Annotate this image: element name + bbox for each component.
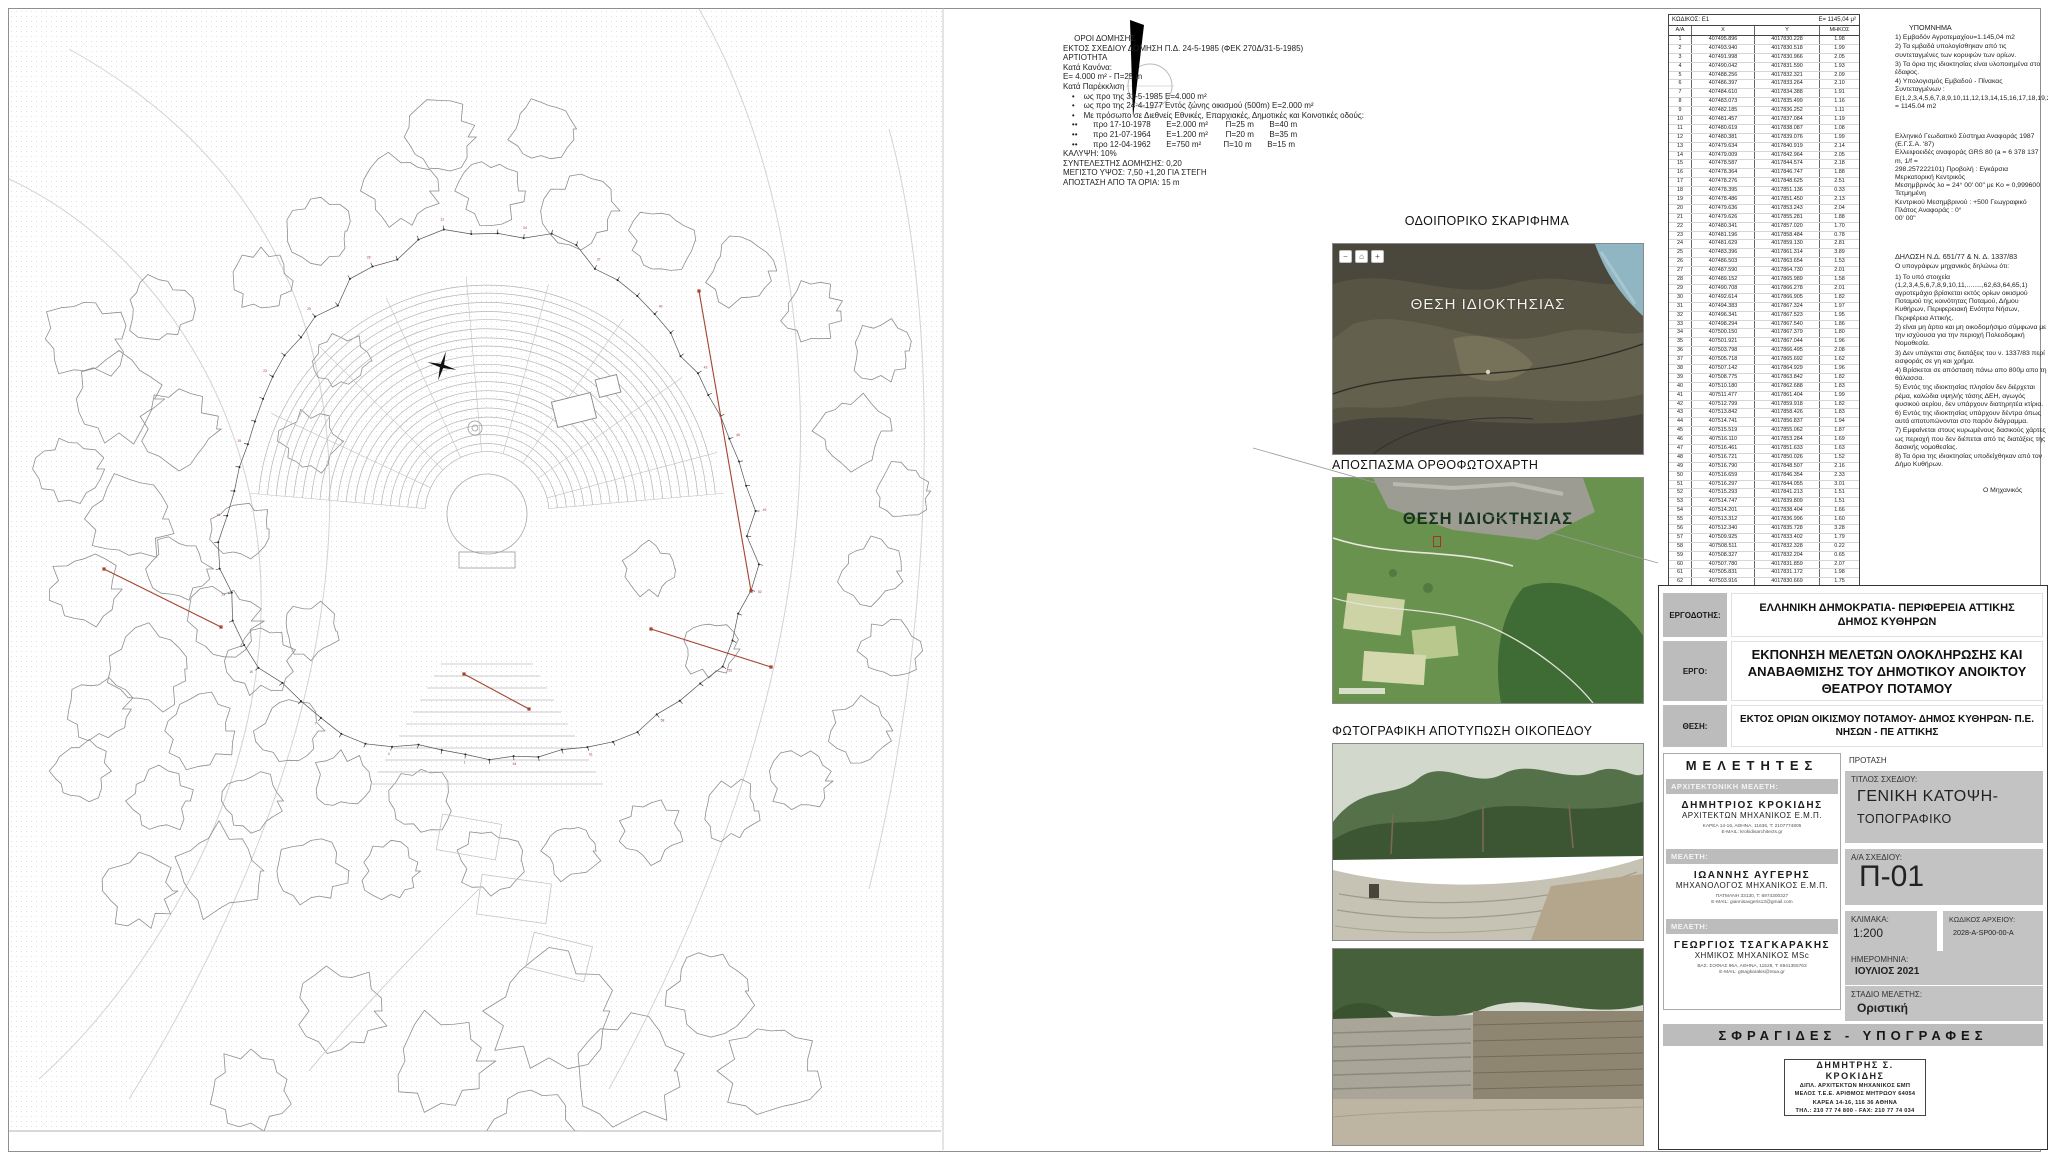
map-control-button-1[interactable]: ⌂ xyxy=(1355,250,1368,263)
table-row: 1407495.8964017830.2281.98 xyxy=(1669,36,1859,45)
table-row: 12407480.3814017839.0761.99 xyxy=(1669,134,1859,143)
text-line: Ε= 4.000 m² - Π=25 m xyxy=(1063,72,1543,82)
date-label: ΗΜΕΡΟΜΗΝΙΑ: xyxy=(1845,951,2043,964)
satellite-map-image xyxy=(1333,244,1643,454)
svg-text:49: 49 xyxy=(763,508,767,512)
table-row: 38407507.1424017864.9291.96 xyxy=(1669,365,1859,374)
date-box: ΗΜΕΡΟΜΗΝΙΑ: ΙΟΥΛΙΟΣ 2021 xyxy=(1845,951,2043,985)
table-row: 22407480.3414017857.0201.70 xyxy=(1669,223,1859,232)
table-row: 44407514.7414017856.8371.94 xyxy=(1669,418,1859,427)
table-row: 34407500.1504017867.3791.80 xyxy=(1669,329,1859,338)
table-row: 60407507.7804017831.8592.07 xyxy=(1669,561,1859,570)
text-line: 1) Εμβαδόν Αγροτεμαχίου=1.145,04 m2 xyxy=(1895,34,2047,42)
stage-value: Οριστική xyxy=(1845,999,2043,1015)
orthophoto-label: ΑΠΟΣΠΑΣΜΑ ΟΡΘΟΦΩΤΟΧΑΡΤΗ xyxy=(1332,458,1538,472)
client-label: ΕΡΓΟΔΟΤΗΣ: xyxy=(1663,593,1727,637)
table-row: 16407478.3644017846.7471.88 xyxy=(1669,169,1859,178)
text-line: 4) Υπολογισμός Εμβαδού - Πίνακας Συντετα… xyxy=(1895,78,2047,111)
sheet-number: Π-01 xyxy=(1845,860,2043,894)
table-row: 45407515.5194017855.0621.87 xyxy=(1669,427,1859,436)
table-row: 41407511.4774017861.4041.99 xyxy=(1669,392,1859,401)
svg-text:13: 13 xyxy=(221,592,225,596)
file-code-label: ΚΩΔΙΚΟΣ ΑΡΧΕΙΟΥ: xyxy=(1943,911,2043,924)
table-row: 30407492.6144017866.9051.82 xyxy=(1669,294,1859,303)
table-row: 53407514.7474017839.8091.51 xyxy=(1669,498,1859,507)
sheet-number-box: Α/Α ΣΧΕΔΙΟΥ: Π-01 xyxy=(1845,849,2043,905)
location-value: ΕΚΤΟΣ ΟΡΙΩΝ ΟΙΚΙΣΜΟΥ ΠΟΤΑΜΟΥ- ΔΗΜΟΣ ΚΥΘΗ… xyxy=(1731,705,2043,747)
site-plan: 1471013161922252831343740434649525558616… xyxy=(9,9,942,1131)
text-line: Κατά Κανόνα: xyxy=(1063,63,1543,73)
designer-entry: ΜΕΛΕΤΗ:ΙΩΑΝΝΗΣ ΑΥΓΕΡΗΣΜΗΧΑΝΟΛΟΓΟΣ ΜΗΧΑΝΙ… xyxy=(1664,849,1840,906)
svg-text:4: 4 xyxy=(388,752,390,756)
table-row: 58407508.5114017832.3280.22 xyxy=(1669,543,1859,552)
table-row: 57407509.9254017833.4021.79 xyxy=(1669,534,1859,543)
coordinates-table: ΚΩΔΙΚΟΣ: Ε1 Ε= 1145,04 μ² Α/Α Χ Υ ΜΗΚΟΣ … xyxy=(1668,14,1860,615)
table-row: 36407503.7984017866.4952.08 xyxy=(1669,347,1859,356)
text-line: Κατά Παρέκκλιση xyxy=(1063,82,1543,92)
orthophoto-map: ΘΕΣΗ ΙΔΙΟΚΤΗΣΙΑΣ xyxy=(1332,477,1644,704)
map-control-button-2[interactable]: + xyxy=(1371,250,1384,263)
text-line: 1) Το υπό στοιχεία (1,2,3,4,5,6,7,8,9,10… xyxy=(1895,274,2047,323)
table-row: 29407490.7084017866.2782.01 xyxy=(1669,285,1859,294)
text-line: Ελληνικό Γεωδαιτικό Σύστημα Αναφοράς 198… xyxy=(1895,133,2047,149)
site-photos-label: ΦΩΤΟΓΡΑΦΙΚΗ ΑΠΟΤΥΠΩΣΗ ΟΙΚΟΠΕΔΟΥ xyxy=(1332,724,1592,738)
declaration-items: 1) Το υπό στοιχεία (1,2,3,4,5,6,7,8,9,10… xyxy=(1895,274,2047,470)
satellite-map: ΘΕΣΗ ΙΔΙΟΚΤΗΣΙΑΣ −⌂+ xyxy=(1332,243,1644,455)
map-controls: −⌂+ xyxy=(1339,250,1384,263)
text-line: ΑΡΤΙΟΤΗΤΑ xyxy=(1063,53,1543,63)
table-row: 43407513.8424017858.4261.83 xyxy=(1669,409,1859,418)
table-row: 50407516.6594017846.3542.33 xyxy=(1669,472,1859,481)
table-row: 17407478.2764017848.6252.51 xyxy=(1669,178,1859,187)
svg-text:1: 1 xyxy=(464,760,466,764)
svg-text:31: 31 xyxy=(441,218,445,222)
svg-text:55: 55 xyxy=(728,669,732,673)
site-photo-1 xyxy=(1332,743,1644,941)
svg-text:19: 19 xyxy=(237,439,241,443)
text-line: Μεσημβρινός λο = 24° 00' 00" με Κο = 0,9… xyxy=(1895,182,2047,198)
legend-items: 1) Εμβαδόν Αγροτεμαχίου=1.145,04 m22) Τα… xyxy=(1895,34,2047,111)
col-header-x: Χ xyxy=(1692,26,1755,35)
table-row: 35407501.9214017867.0441.96 xyxy=(1669,338,1859,347)
table-row: 49407516.7904017848.5072.16 xyxy=(1669,463,1859,472)
site-plan-svg: 1471013161922252831343740434649525558616… xyxy=(9,9,942,1131)
col-header-y: Υ xyxy=(1755,26,1820,35)
table-row: 56407512.3404017835.7283.28 xyxy=(1669,525,1859,534)
text-line: Ελλειψοειδές αναφοράς GRS 80 (a = 6 378 … xyxy=(1895,149,2047,165)
table-row: 19407478.4864017851.4502.13 xyxy=(1669,196,1859,205)
site-photo-2-image xyxy=(1333,949,1643,1145)
table-row: 47407516.4614017851.6331.63 xyxy=(1669,445,1859,454)
text-line: 2) είναι μη άρτιο και μη οικοδομήσιμο σύ… xyxy=(1895,324,2047,349)
table-code-label: ΚΩΔΙΚΟΣ: Ε1 xyxy=(1672,16,1709,24)
declaration-title: ΔΗΛΩΣΗ Ν.Δ. 651/77 & Ν. Δ. 1337/83 xyxy=(1895,253,2047,261)
table-row: 25407483.3964017861.3143.89 xyxy=(1669,249,1859,258)
engineer-signoff: Ο Μηχανικός xyxy=(1983,487,2047,495)
svg-text:64: 64 xyxy=(513,762,517,766)
table-row: 2407493.9404017830.5181.99 xyxy=(1669,45,1859,54)
sketch-map-label: ΟΔΟΙΠΟΡΙΚΟ ΣΚΑΡΙΦΗΜΑ xyxy=(1332,214,1642,228)
col-header-length: ΜΗΚΟΣ xyxy=(1820,26,1859,35)
table-row: 13407479.6344017840.9192.14 xyxy=(1669,143,1859,152)
table-row: 7407484.6104017834.3881.91 xyxy=(1669,89,1859,98)
text-line: ΟΡΟΙ ΔΟΜΗΣΗΣ xyxy=(1063,34,1543,44)
table-row: 3407491.9984017830.9662.05 xyxy=(1669,54,1859,63)
table-row: 20407479.6364017853.2432.04 xyxy=(1669,205,1859,214)
svg-text:40: 40 xyxy=(659,304,663,308)
designer-entry: ΜΕΛΕΤΗ:ΓΕΩΡΓΙΟΣ ΤΣΑΓΚΑΡΑΚΗΣΧΗΜΙΚΟΣ ΜΗΧΑΝ… xyxy=(1664,919,1840,976)
table-row: 51407516.2974017844.0553.01 xyxy=(1669,481,1859,490)
legend-title: ΥΠΟΜΝΗΜΑ xyxy=(1895,24,2047,32)
table-row: 23407481.1964017858.4840.78 xyxy=(1669,232,1859,241)
text-line: ΤΗΛ.: 210 77 74 800 - FAX: 210 77 74 034 xyxy=(1785,1107,1925,1116)
scale-value: 1:200 xyxy=(1845,924,1937,940)
table-row: 39407508.7754017863.8421.82 xyxy=(1669,374,1859,383)
client-value-line2: ΔΗΜΟΣ ΚΥΘΗΡΩΝ xyxy=(1838,615,1937,629)
file-code-value: 2028-A-SP00-00-A xyxy=(1943,924,2043,937)
site-photo-2 xyxy=(1332,948,1644,1146)
proposal-label: ΠΡΟΤΑΣΗ xyxy=(1849,756,1887,765)
declaration-intro: Ο υπογράφων μηχανικός δηλώνω ότι: xyxy=(1895,263,2047,271)
text-line: 298.257222101) Προβολή : Εγκάρσια Μερκατ… xyxy=(1895,166,2047,182)
table-row: 52407515.2934017841.2131.51 xyxy=(1669,489,1859,498)
project-label: ΕΡΓΟ: xyxy=(1663,641,1727,701)
drawing-sheet: 1471013161922252831343740434649525558616… xyxy=(0,0,2048,1159)
stamp-lines: ΔΗΜΗΤΡΗΣ Σ. ΚΡΟΚΙΔΗΣΔΙΠΛ. ΑΡΧΙΤΕΚΤΩΝ ΜΗΧ… xyxy=(1785,1060,1925,1116)
svg-text:46: 46 xyxy=(736,433,740,437)
text-line: ΔΙΠΛ. ΑΡΧΙΤΕΚΤΩΝ ΜΗΧΑΝΙΚΟΣ ΕΜΠ xyxy=(1785,1082,1925,1091)
site-location-label-satellite: ΘΕΣΗ ΙΔΙΟΚΤΗΣΙΑΣ xyxy=(1333,296,1643,313)
svg-text:52: 52 xyxy=(758,590,762,594)
table-row: 33407498.2944017867.5401.86 xyxy=(1669,321,1859,330)
text-line: ΕΚΤΟΣ ΣΧΕΔΙΟΥ ΔΟΜΗΣΗ Π.Δ. 24-5-1985 (ΦΕΚ… xyxy=(1063,44,1543,54)
file-code-box: ΚΩΔΙΚΟΣ ΑΡΧΕΙΟΥ: 2028-A-SP00-00-A xyxy=(1943,911,2043,955)
table-row: 14407479.0094017842.9642.05 xyxy=(1669,152,1859,161)
svg-text:7: 7 xyxy=(314,722,316,726)
text-line: •• προ 17-10-1978 Ε=2.000 m² Π=25 m Β=40… xyxy=(1063,120,1543,130)
building-regulations: ΟΡΟΙ ΔΟΜΗΣΗΣΕΚΤΟΣ ΣΧΕΔΙΟΥ ΔΟΜΗΣΗ Π.Δ. 24… xyxy=(1063,34,1543,188)
text-line: ΜΕΓΙΣΤΟ ΥΨΟΣ: 7,50 +1,20 ΓΙΑ ΣΤΕΓΗ xyxy=(1063,168,1543,178)
coords-table-body: 1407495.8964017830.2281.982407493.940401… xyxy=(1669,36,1859,614)
site-photo-1-image xyxy=(1333,744,1643,940)
sheet-title-label: ΤΙΤΛΟΣ ΣΧΕΔΙΟΥ: xyxy=(1845,771,2043,784)
stage-box: ΣΤΑΔΙΟ ΜΕΛΕΤΗΣ: Οριστική xyxy=(1845,986,2043,1021)
table-row: 27407487.5904017864.7302.01 xyxy=(1669,267,1859,276)
table-row: 61407505.8314017831.1721.98 xyxy=(1669,569,1859,578)
designers-list: ΑΡΧΙΤΕΚΤΟΝΙΚΗ ΜΕΛΕΤΗ:ΔΗΜΗΤΡΙΟΣ ΚΡΟΚΙΔΗΣΑ… xyxy=(1664,779,1840,976)
table-row: 54407514.2014017838.4041.66 xyxy=(1669,507,1859,516)
text-line: 6) Εντός της ιδιοκτησίας υπάρχουν δέντρα… xyxy=(1895,410,2047,426)
svg-text:37: 37 xyxy=(597,258,601,262)
text-line: Κεντρικού Μεσημβρινού : +500 Γεωγραφικό … xyxy=(1895,199,2047,215)
table-row: 31407494.3834017867.3241.97 xyxy=(1669,303,1859,312)
stage-label: ΣΤΑΔΙΟ ΜΕΛΕΤΗΣ: xyxy=(1845,986,2043,999)
text-line: • ως προ της 31-5-1985 Ε=4.000 m² xyxy=(1063,92,1543,102)
text-line: 3) Τα όρια της ιδιοκτησίας είναι υλοποιη… xyxy=(1895,61,2047,77)
title-block: ΕΡΓΟΔΟΤΗΣ: ΕΛΛΗΝΙΚΗ ΔΗΜΟΚΡΑΤΙΑ- ΠΕΡΙΦΕΡΕ… xyxy=(1658,585,2048,1150)
site-marker xyxy=(1433,536,1441,547)
site-location-label-ortho: ΘΕΣΗ ΙΔΙΟΚΤΗΣΙΑΣ xyxy=(1333,510,1643,529)
scale-label: ΚΛΙΜΑΚΑ: xyxy=(1845,911,1937,924)
svg-text:22: 22 xyxy=(263,369,267,373)
table-row: 6407486.3974017833.2642.10 xyxy=(1669,80,1859,89)
date-value: ΙΟΥΛΙΟΣ 2021 xyxy=(1845,964,2043,977)
text-line: 4) Βρίσκεται σε απόσταση πάνω απο 800μ α… xyxy=(1895,367,2047,383)
table-row: 37407505.7184017865.6921.62 xyxy=(1669,356,1859,365)
svg-text:61: 61 xyxy=(589,752,593,756)
table-row: 40407510.1804017862.6881.83 xyxy=(1669,383,1859,392)
table-row: 15407478.5874017844.5742.18 xyxy=(1669,160,1859,169)
svg-text:10: 10 xyxy=(249,670,253,674)
geodetic-system-note: Ελληνικό Γεωδαιτικό Σύστημα Αναφοράς 198… xyxy=(1895,133,2047,223)
table-row: 48407516.7214017850.0261.52 xyxy=(1669,454,1859,463)
text-line: • ως προ της 24-4-1977 Εντός ζώνης οικισ… xyxy=(1063,101,1543,111)
text-line: •• προ 12-04-1962 Ε=750 m² Π=10 m Β=15 m xyxy=(1063,140,1543,150)
designers-panel: ΜΕΛΕΤΗΤΕΣ ΑΡΧΙΤΕΚΤΟΝΙΚΗ ΜΕΛΕΤΗ:ΔΗΜΗΤΡΙΟΣ… xyxy=(1663,753,1841,1010)
text-line: 3) Δεν υπάγεται στις διατάξεις του ν. 13… xyxy=(1895,350,2047,366)
table-row: 21407479.6264017855.2811.88 xyxy=(1669,214,1859,223)
scale-box: ΚΛΙΜΑΚΑ: 1:200 xyxy=(1845,911,1937,955)
text-line: 5) Εντός της ιδιοκτησίας πλησίον δεν διέ… xyxy=(1895,384,2047,409)
table-row: 5407488.2564017832.3212.09 xyxy=(1669,72,1859,81)
table-row: 8407483.0734017835.4991.16 xyxy=(1669,98,1859,107)
table-row: 24407481.6294017859.1302.81 xyxy=(1669,240,1859,249)
map-control-button-0[interactable]: − xyxy=(1339,250,1352,263)
text-line: ΣΥΝΤΕΛΕΣΤΗΣ ΔΟΜΗΣΗΣ: 0,20 xyxy=(1063,159,1543,169)
stamps-header: ΣΦΡΑΓΙΔΕΣ - ΥΠΟΓΡΑΦΕΣ xyxy=(1663,1024,2043,1046)
text-line: ΑΠΟΣΤΑΣΗ ΑΠΟ ΤΑ ΟΡΙΑ: 15 m xyxy=(1063,178,1543,188)
designers-header: ΜΕΛΕΤΗΤΕΣ xyxy=(1664,758,1840,773)
table-row: 28407489.1524017865.9891.58 xyxy=(1669,276,1859,285)
sheet-title-box: ΤΙΤΛΟΣ ΣΧΕΔΙΟΥ: ΓΕΝΙΚΗ ΚΑΤΟΨΗ- ΤΟΠΟΓΡΑΦΙ… xyxy=(1845,771,2043,843)
designer-entry: ΑΡΧΙΤΕΚΤΟΝΙΚΗ ΜΕΛΕΤΗ:ΔΗΜΗΤΡΙΟΣ ΚΡΟΚΙΔΗΣΑ… xyxy=(1664,779,1840,836)
svg-text:43: 43 xyxy=(704,365,708,369)
text-line: 00' 00" xyxy=(1895,215,2047,223)
svg-text:28: 28 xyxy=(367,255,371,259)
text-line: 2) Τα εμβαδά υπολογίσθηκαν από τις συντε… xyxy=(1895,43,2047,59)
engineer-stamp: ΔΗΜΗΤΡΗΣ Σ. ΚΡΟΚΙΔΗΣΔΙΠΛ. ΑΡΧΙΤΕΚΤΩΝ ΜΗΧ… xyxy=(1784,1059,1926,1116)
table-row: 55407513.3124017836.9961.60 xyxy=(1669,516,1859,525)
table-row: 11407480.6194017838.0871.08 xyxy=(1669,125,1859,134)
client-value-line1: ΕΛΛΗΝΙΚΗ ΔΗΜΟΚΡΑΤΙΑ- ΠΕΡΙΦΕΡΕΙΑ ΑΤΤΙΚΗΣ xyxy=(1759,601,2014,615)
notes-column: ΥΠΟΜΝΗΜΑ 1) Εμβαδόν Αγροτεμαχίου=1.145,0… xyxy=(1895,24,2047,496)
svg-text:16: 16 xyxy=(216,513,220,517)
table-row: 42407512.7994017859.9181.82 xyxy=(1669,401,1859,410)
table-row: 46407516.1104017853.2841.69 xyxy=(1669,436,1859,445)
table-row: 4407490.0424017831.5901.93 xyxy=(1669,63,1859,72)
sheet-title-line2: ΤΟΠΟΓΡΑΦΙΚΟ xyxy=(1845,806,2043,826)
sheet-title-line1: ΓΕΝΙΚΗ ΚΑΤΟΨΗ- xyxy=(1845,784,2043,806)
text-line: ΚΑΛΥΨΗ: 10% xyxy=(1063,149,1543,159)
text-line: 8) Τα όρια της ιδιοκτησίας υποδείχθηκαν … xyxy=(1895,453,2047,469)
table-row: 9407482.1854017836.2521.11 xyxy=(1669,107,1859,116)
table-row: 10407481.4574017837.0841.19 xyxy=(1669,116,1859,125)
text-line: ΔΗΜΗΤΡΗΣ Σ. ΚΡΟΚΙΔΗΣ xyxy=(1785,1060,1925,1082)
table-row: 26407486.5034017863.6541.53 xyxy=(1669,258,1859,267)
location-label: ΘΕΣΗ: xyxy=(1663,705,1727,747)
declaration-note: ΔΗΛΩΣΗ Ν.Δ. 651/77 & Ν. Δ. 1337/83 Ο υπο… xyxy=(1895,253,2047,495)
table-area-label: Ε= 1145,04 μ² xyxy=(1818,16,1856,24)
project-value: ΕΚΠΟΝΗΣΗ ΜΕΛΕΤΩΝ ΟΛΟΚΛΗΡΩΣΗΣ ΚΑΙ ΑΝΑΒΑΘΜ… xyxy=(1731,641,2043,701)
text-line: ΚΑΡΕΑ 14-16, 116 36 ΑΘΗΝΑ xyxy=(1785,1099,1925,1108)
svg-text:58: 58 xyxy=(661,718,665,722)
text-line: •• προ 21-07-1964 Ε=1.200 m² Π=20 m Β=35… xyxy=(1063,130,1543,140)
col-header-aa: Α/Α xyxy=(1669,26,1692,35)
svg-text:25: 25 xyxy=(307,307,311,311)
text-line: 7) Εμφαίνεται στους κυρωμένους δασικούς … xyxy=(1895,427,2047,452)
svg-text:34: 34 xyxy=(523,226,527,230)
text-line: • Με πρόσωπο σε Διεθνείς Εθνικές, Επαρχι… xyxy=(1063,111,1543,121)
table-row: 32407496.3414017867.5231.95 xyxy=(1669,312,1859,321)
table-row: 59407508.3274017832.2040.65 xyxy=(1669,552,1859,561)
text-line: ΜΕΛΟΣ Τ.Ε.Ε. ΑΡΙΘΜΟΣ ΜΗΤΡΩΟΥ 64054 xyxy=(1785,1090,1925,1099)
table-row: 18407478.3954017851.1360.33 xyxy=(1669,187,1859,196)
